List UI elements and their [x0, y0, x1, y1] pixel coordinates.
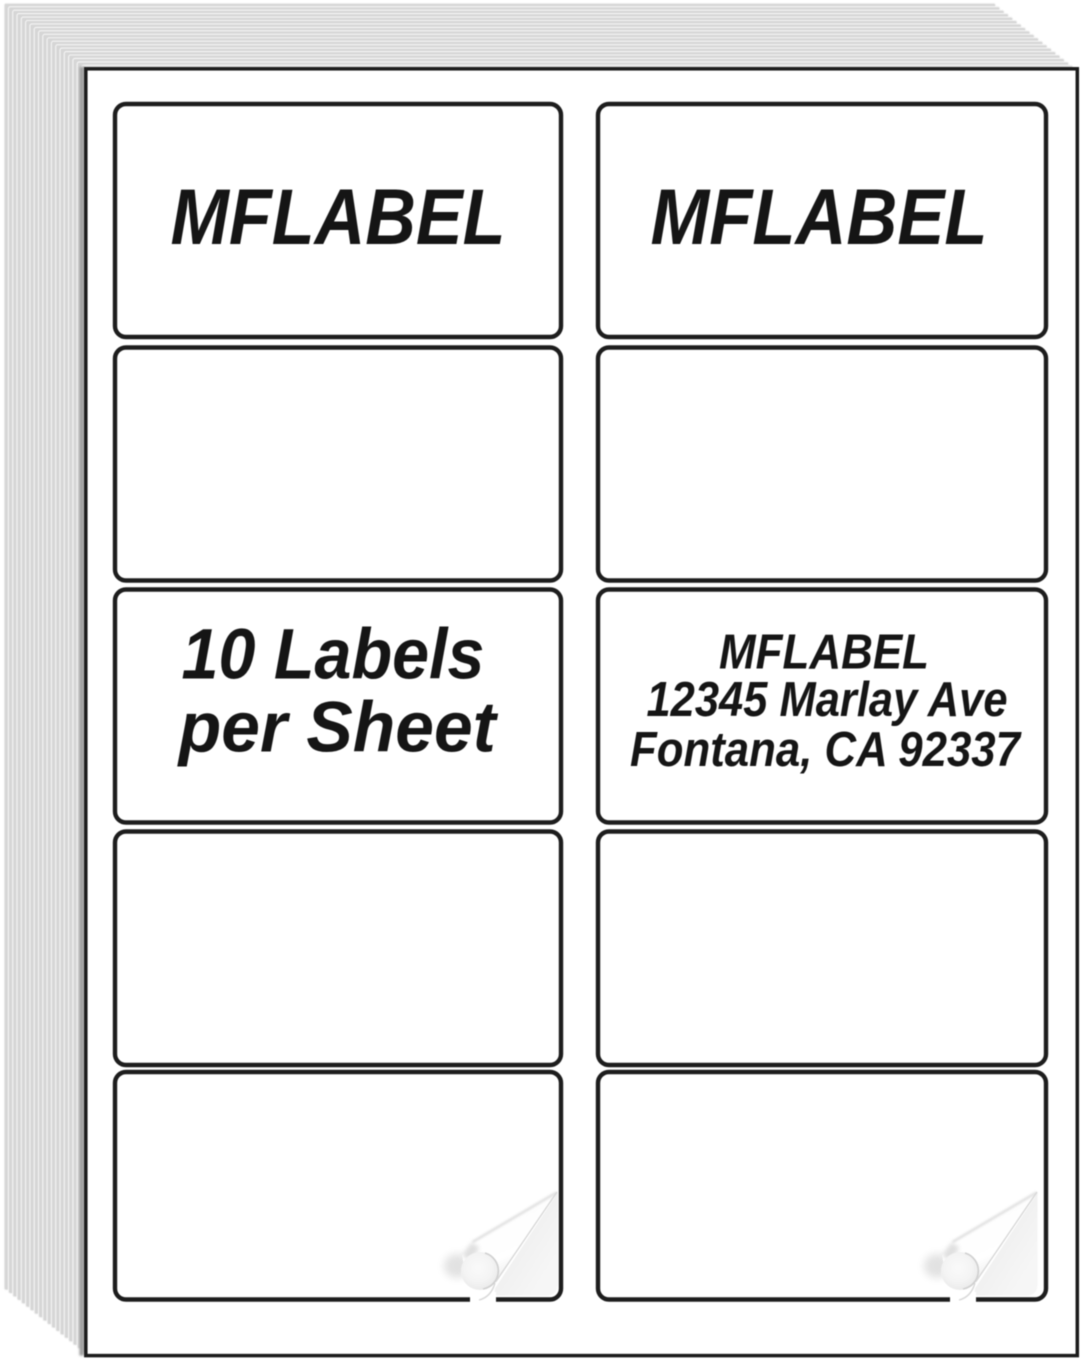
svg-text:Fontana, CA 92337: Fontana, CA 92337: [630, 723, 1022, 777]
svg-text:12345 Marlay Ave: 12345 Marlay Ave: [647, 673, 1008, 727]
svg-text:MFLABEL: MFLABEL: [171, 172, 506, 261]
svg-text:per Sheet: per Sheet: [177, 689, 499, 768]
svg-text:MFLABEL: MFLABEL: [651, 172, 988, 261]
svg-text:MFLABEL: MFLABEL: [719, 626, 929, 680]
svg-text:10 Labels: 10 Labels: [182, 616, 485, 695]
